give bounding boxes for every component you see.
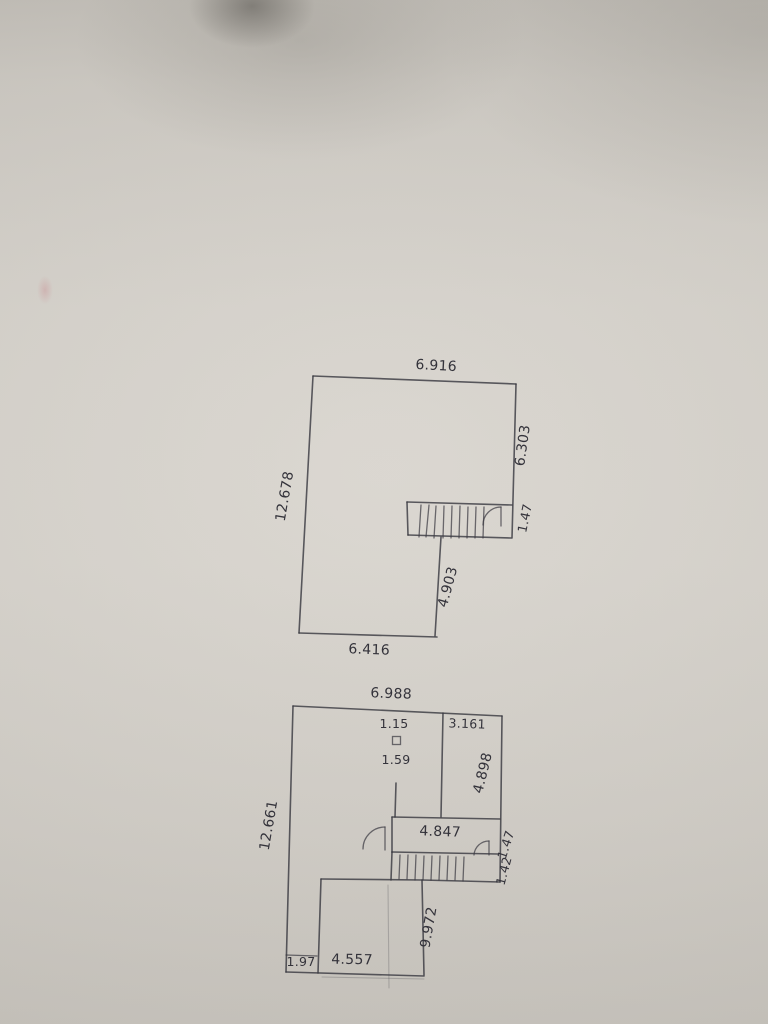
bottom-strip-width-label: 1.97	[286, 954, 315, 969]
dim-below-column-label: 1.59	[381, 752, 410, 767]
floorplan-sketch-canvas: 6.916 12.678 6.303 1.47 4.903 6.416	[0, 0, 768, 1024]
upper-door-swing-icon	[483, 507, 501, 526]
upper-bottom-width-label: 6.416	[348, 641, 390, 658]
lower-left-door-swing-icon	[363, 827, 385, 850]
bottom-room-width-label: 4.557	[331, 952, 373, 969]
lower-inner-height-label: 9.972	[418, 905, 441, 949]
landing-width-label: 4.847	[419, 823, 461, 840]
lower-left-height-label: 12.661	[257, 799, 282, 852]
lower-top-width-label: 6.988	[370, 685, 412, 702]
stair-depth-label: 1.42	[493, 855, 515, 887]
lower-plan-labels: 6.988 1.15 1.59 3.161 4.898 12.661 4.847…	[257, 685, 518, 969]
upper-floor-plan: 6.916 12.678 6.303 1.47 4.903 6.416	[273, 357, 535, 659]
right-room-width-label: 3.161	[448, 715, 486, 731]
photo-of-paper: { "colors": { "paper": "#d4d0c9", "ink":…	[0, 0, 768, 1024]
upper-stair-depth-label: 1.47	[514, 502, 535, 534]
column-marker	[393, 737, 401, 745]
upper-staircase	[407, 502, 512, 538]
upper-top-width-label: 6.916	[415, 357, 457, 375]
lower-floor-plan: 6.988 1.15 1.59 3.161 4.898 12.661 4.847…	[257, 685, 518, 988]
right-room-height-label: 4.898	[470, 751, 496, 795]
dim-above-column-label: 1.15	[379, 716, 408, 731]
landing-depth-label: 1.47	[494, 828, 517, 860]
upper-left-height-label: 12.678	[273, 470, 298, 523]
